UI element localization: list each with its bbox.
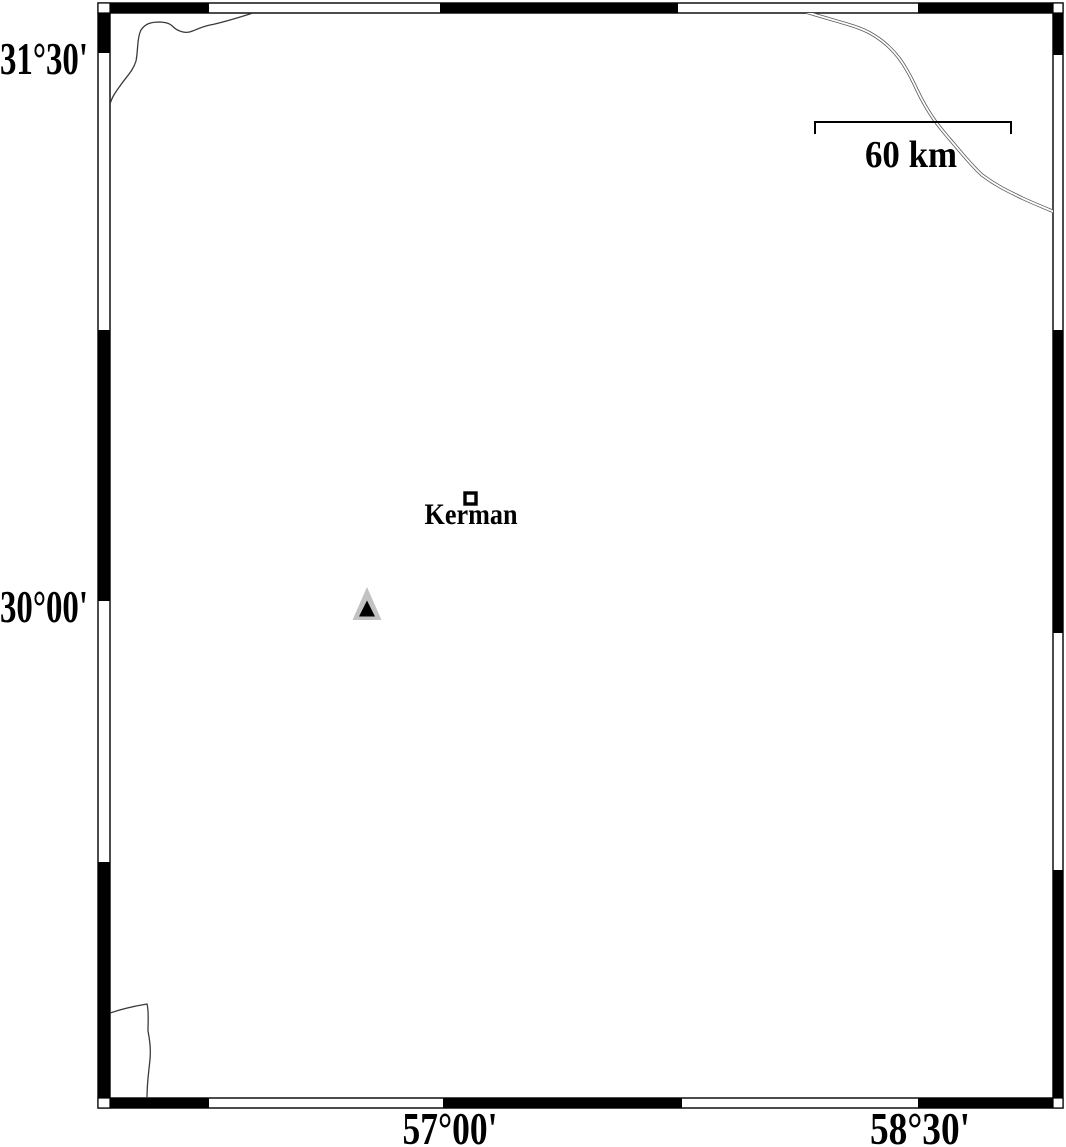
city-kerman: Kerman bbox=[425, 493, 518, 531]
frame-corner-top-left bbox=[98, 3, 110, 13]
frame-tick-segment bbox=[1053, 330, 1063, 633]
lon-label-58-30: 58°30' bbox=[870, 1103, 970, 1147]
lat-label-30-00: 30°00' bbox=[0, 581, 88, 632]
frame-tick-segment bbox=[110, 3, 209, 13]
frame-tick-segment bbox=[440, 3, 678, 13]
lon-label-57-00: 57°00' bbox=[403, 1103, 498, 1147]
frame-corner-top-right bbox=[1053, 3, 1063, 13]
city-label-kerman: Kerman bbox=[425, 498, 518, 531]
frame-corner-bottom-left bbox=[98, 1098, 110, 1108]
frame-tick-segment bbox=[98, 330, 110, 601]
frame-tick-segment bbox=[918, 3, 1053, 13]
map-figure: 60 km Kerman 31°30' 30°00' 57°00' 58°30' bbox=[0, 0, 1066, 1147]
scale-bar-label: 60 km bbox=[865, 134, 957, 176]
map-canvas: 60 km Kerman 31°30' 30°00' 57°00' 58°30' bbox=[0, 0, 1066, 1147]
frame-tick-segment bbox=[98, 862, 110, 1098]
frame-tick-segment bbox=[98, 13, 110, 53]
frame-corner-bottom-right bbox=[1053, 1098, 1063, 1108]
frame-tick-segment bbox=[108, 1098, 209, 1108]
frame-tick-segment bbox=[1053, 870, 1063, 1098]
frame-tick-segment bbox=[1053, 13, 1063, 55]
lat-label-31-30: 31°30' bbox=[0, 33, 88, 84]
